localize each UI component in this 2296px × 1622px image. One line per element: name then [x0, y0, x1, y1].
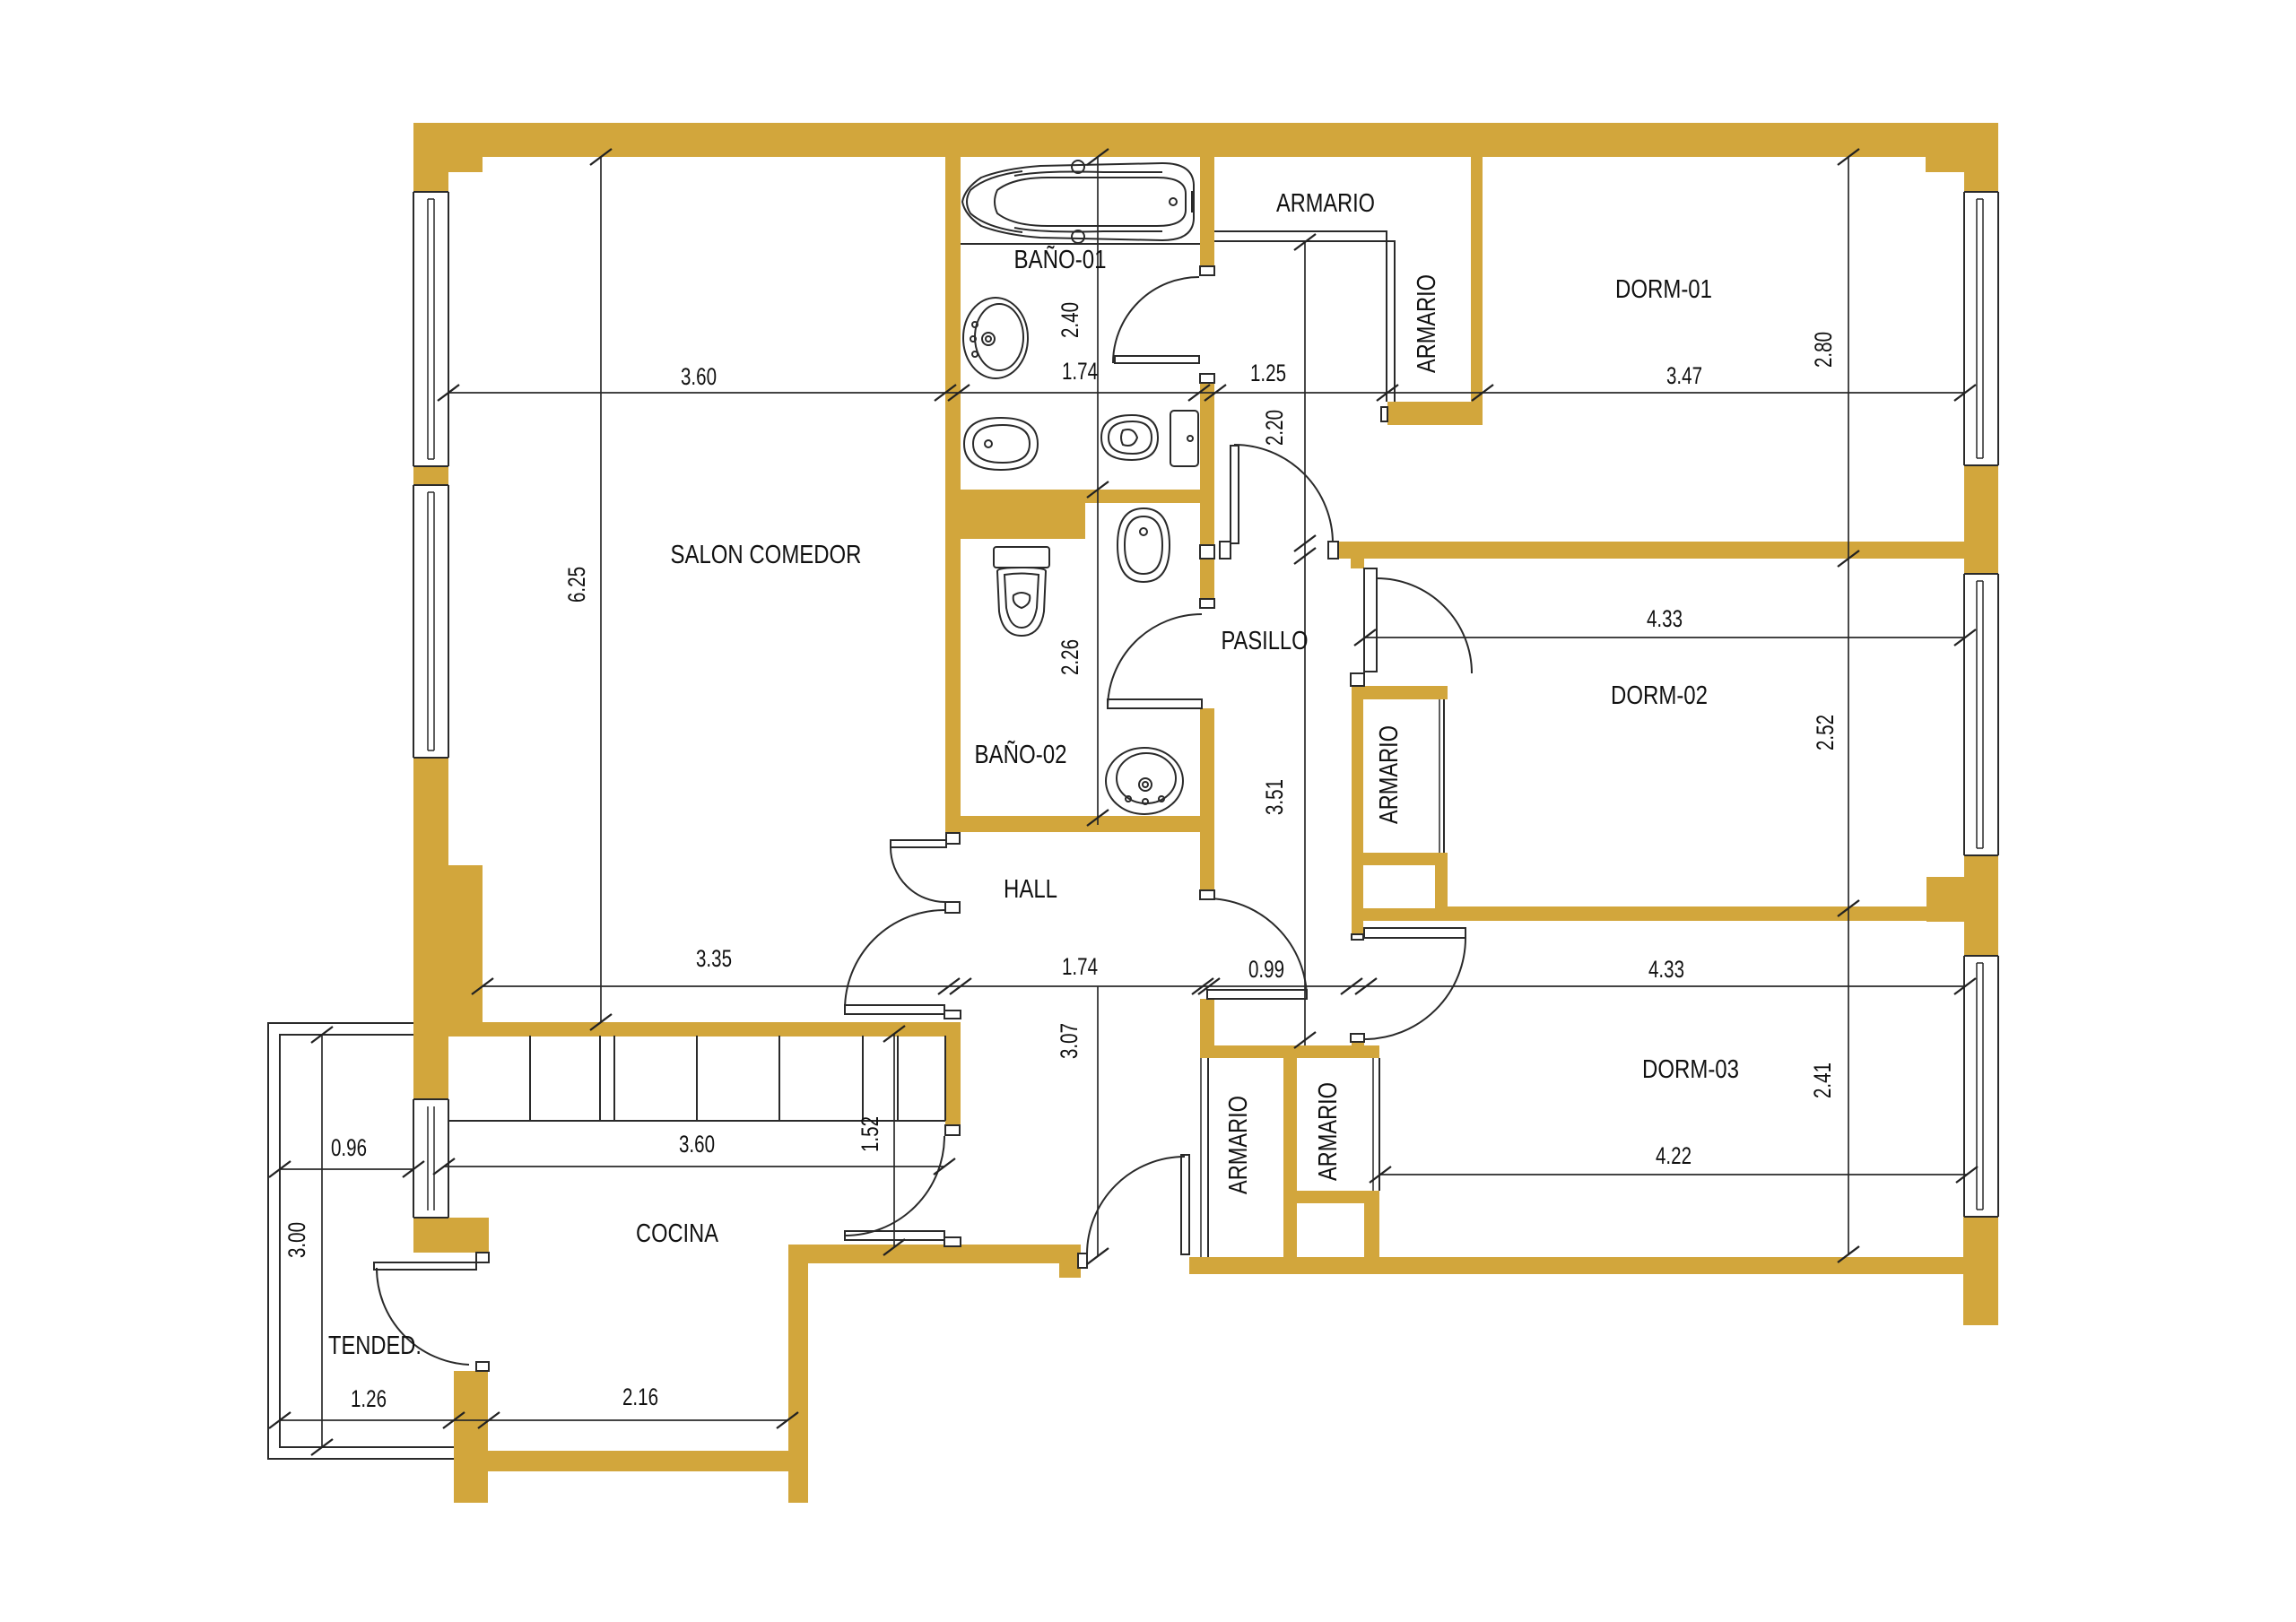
svg-text:3.00: 3.00 [283, 1222, 310, 1258]
svg-text:3.07: 3.07 [1056, 1023, 1083, 1059]
svg-text:0.99: 0.99 [1248, 956, 1284, 983]
svg-text:1.74: 1.74 [1062, 358, 1098, 385]
svg-text:HALL: HALL [1004, 875, 1057, 904]
svg-text:2.16: 2.16 [622, 1383, 658, 1410]
svg-text:SALON COMEDOR: SALON COMEDOR [671, 541, 862, 569]
svg-text:2.41: 2.41 [1809, 1063, 1836, 1098]
svg-text:2.26: 2.26 [1057, 639, 1083, 675]
svg-text:1.25: 1.25 [1250, 360, 1286, 386]
svg-text:3.47: 3.47 [1666, 362, 1702, 389]
svg-text:2.52: 2.52 [1812, 715, 1839, 750]
svg-text:BAÑO-01: BAÑO-01 [1014, 244, 1107, 274]
svg-text:2.80: 2.80 [1810, 332, 1837, 368]
svg-text:BAÑO-02: BAÑO-02 [975, 739, 1067, 769]
svg-text:ARMARIO: ARMARIO [1413, 274, 1441, 373]
svg-text:3.60: 3.60 [679, 1131, 715, 1158]
svg-text:0.96: 0.96 [331, 1134, 367, 1161]
svg-text:COCINA: COCINA [636, 1219, 719, 1248]
svg-text:1.52: 1.52 [857, 1116, 883, 1152]
svg-text:4.33: 4.33 [1648, 956, 1684, 983]
svg-text:DORM-01: DORM-01 [1615, 275, 1712, 304]
svg-text:2.20: 2.20 [1261, 410, 1288, 446]
svg-text:ARMARIO: ARMARIO [1224, 1096, 1253, 1194]
svg-text:ARMARIO: ARMARIO [1314, 1082, 1343, 1181]
svg-text:6.25: 6.25 [563, 567, 590, 603]
svg-text:4.33: 4.33 [1647, 605, 1683, 632]
svg-text:2.40: 2.40 [1057, 302, 1083, 338]
svg-text:1.26: 1.26 [351, 1385, 387, 1412]
svg-text:3.51: 3.51 [1261, 779, 1288, 815]
svg-text:ARMARIO: ARMARIO [1375, 725, 1404, 824]
svg-text:DORM-03: DORM-03 [1642, 1055, 1739, 1084]
svg-text:TENDED.: TENDED. [328, 1331, 422, 1360]
svg-text:4.22: 4.22 [1656, 1142, 1692, 1169]
svg-text:ARMARIO: ARMARIO [1276, 189, 1375, 218]
svg-text:DORM-02: DORM-02 [1611, 681, 1708, 710]
svg-text:3.60: 3.60 [681, 363, 717, 390]
svg-text:PASILLO: PASILLO [1222, 627, 1309, 655]
svg-text:3.35: 3.35 [696, 945, 732, 972]
svg-text:1.74: 1.74 [1062, 953, 1098, 980]
